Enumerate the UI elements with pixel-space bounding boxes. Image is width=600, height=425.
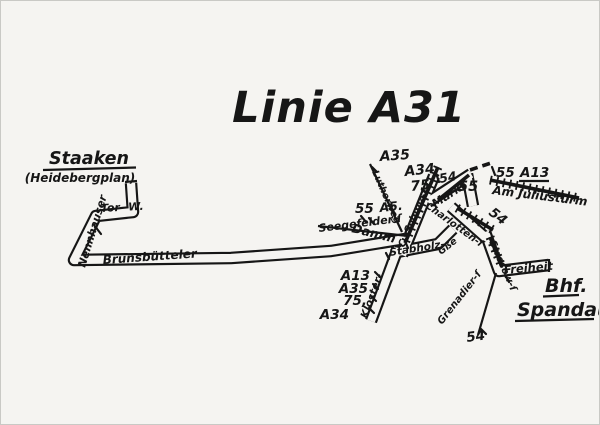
terminus-staaken: Staaken bbox=[49, 149, 129, 169]
line-number-54-stresow: 54 bbox=[486, 205, 511, 229]
map-title: Linie A31 bbox=[232, 83, 466, 133]
line-number-55-seegefelder: 55 bbox=[355, 201, 374, 217]
line-number-a13-juliusturm: A13 bbox=[519, 165, 549, 181]
terminus-spandau: Spandau bbox=[517, 299, 600, 321]
terminus-staaken-detail: (Heidebergplan) bbox=[25, 171, 136, 185]
map-canvas: Linie A31 Staaken (Heidebergplan) Tor- W… bbox=[1, 1, 600, 425]
line-number-54-grenadier: 54 bbox=[465, 328, 486, 346]
line-grenadier bbox=[478, 273, 496, 335]
route-map-linie-a31: Linie A31 Staaken (Heidebergplan) Tor- W… bbox=[0, 0, 600, 425]
terminus-bhf: Bhf. bbox=[545, 275, 587, 297]
route-dashed-continuation bbox=[470, 162, 494, 170]
line-number-a34-kloster: A34 bbox=[319, 307, 349, 323]
street-label-am-juliusturm: Am Juliusturm bbox=[491, 183, 589, 209]
line-number-55-juliusturm: 55 bbox=[496, 165, 515, 181]
street-label-grenadier: Grenadier-ſ bbox=[436, 268, 485, 327]
line-number-a35-nw: A35 bbox=[378, 147, 411, 165]
